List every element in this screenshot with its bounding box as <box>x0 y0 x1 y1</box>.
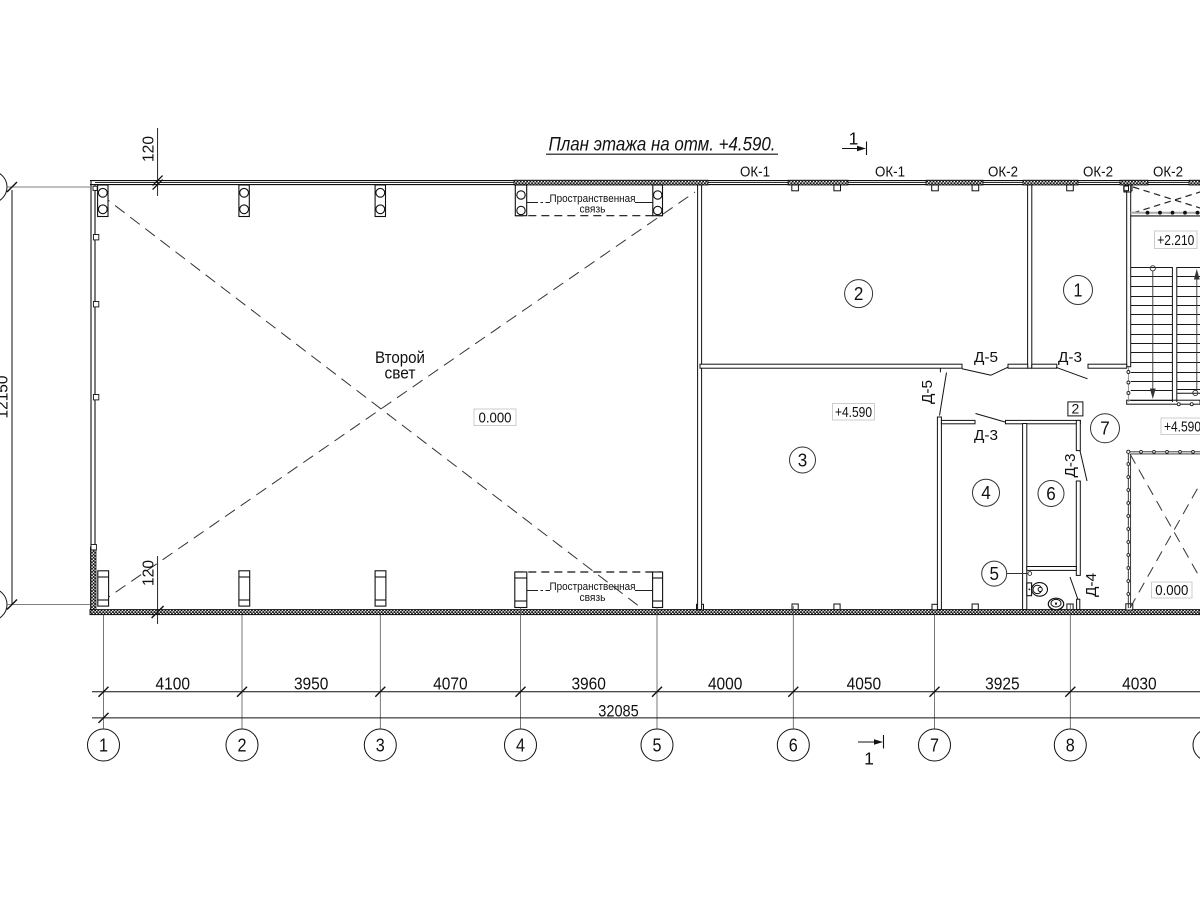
svg-text:свет: свет <box>385 365 416 383</box>
svg-text:120: 120 <box>141 136 158 162</box>
svg-text:1: 1 <box>849 129 859 149</box>
svg-text:6: 6 <box>789 736 798 756</box>
svg-text:1: 1 <box>864 749 874 769</box>
svg-text:4100: 4100 <box>156 674 191 694</box>
svg-text:+2.210: +2.210 <box>1157 232 1194 249</box>
svg-text:0.000: 0.000 <box>479 410 512 427</box>
svg-text:Д-5: Д-5 <box>919 380 936 404</box>
svg-text:5: 5 <box>653 736 662 756</box>
svg-text:ОК-1: ОК-1 <box>875 164 905 181</box>
svg-text:3960: 3960 <box>571 674 606 694</box>
svg-text:7: 7 <box>1100 419 1110 439</box>
svg-text:12150: 12150 <box>0 375 12 418</box>
svg-text:4030: 4030 <box>1122 674 1157 694</box>
svg-text:5: 5 <box>989 564 999 584</box>
svg-text:32085: 32085 <box>598 702 639 721</box>
svg-text:4: 4 <box>516 736 525 756</box>
svg-text:ОК-1: ОК-1 <box>740 164 770 181</box>
svg-text:1: 1 <box>99 736 108 756</box>
svg-text:2: 2 <box>1072 400 1080 416</box>
svg-text:ОК-2: ОК-2 <box>1153 164 1183 181</box>
svg-text:4000: 4000 <box>708 674 743 694</box>
svg-text:Д-3: Д-3 <box>1062 454 1079 478</box>
svg-text:2: 2 <box>854 284 864 304</box>
svg-text:ОК-2: ОК-2 <box>1083 164 1113 181</box>
svg-text:Д-3: Д-3 <box>1058 349 1082 366</box>
svg-text:Д-4: Д-4 <box>1083 573 1100 597</box>
svg-text:4050: 4050 <box>847 674 882 694</box>
svg-text:3: 3 <box>376 736 385 756</box>
svg-text:3925: 3925 <box>985 674 1020 694</box>
svg-text:4: 4 <box>981 483 991 503</box>
svg-text:0.000: 0.000 <box>1155 582 1188 599</box>
svg-text:2: 2 <box>238 736 247 756</box>
svg-text:План этажа на отм. +4.590.: План этажа на отм. +4.590. <box>549 135 776 156</box>
svg-text:связь: связь <box>580 592 606 604</box>
svg-text:3: 3 <box>798 450 808 470</box>
svg-text:3950: 3950 <box>294 674 329 694</box>
svg-text:Д-5: Д-5 <box>974 349 998 366</box>
svg-text:6: 6 <box>1046 484 1056 504</box>
svg-text:7: 7 <box>930 736 939 756</box>
svg-text:+4.590: +4.590 <box>1164 419 1200 436</box>
svg-text:4070: 4070 <box>433 674 468 694</box>
svg-text:8: 8 <box>1066 736 1075 756</box>
svg-text:1: 1 <box>1074 280 1083 300</box>
svg-text:120: 120 <box>141 560 158 586</box>
svg-text:ОК-2: ОК-2 <box>988 164 1018 181</box>
svg-text:Д-3: Д-3 <box>974 427 998 444</box>
svg-text:+4.590: +4.590 <box>835 404 872 421</box>
svg-text:связь: связь <box>580 203 606 215</box>
